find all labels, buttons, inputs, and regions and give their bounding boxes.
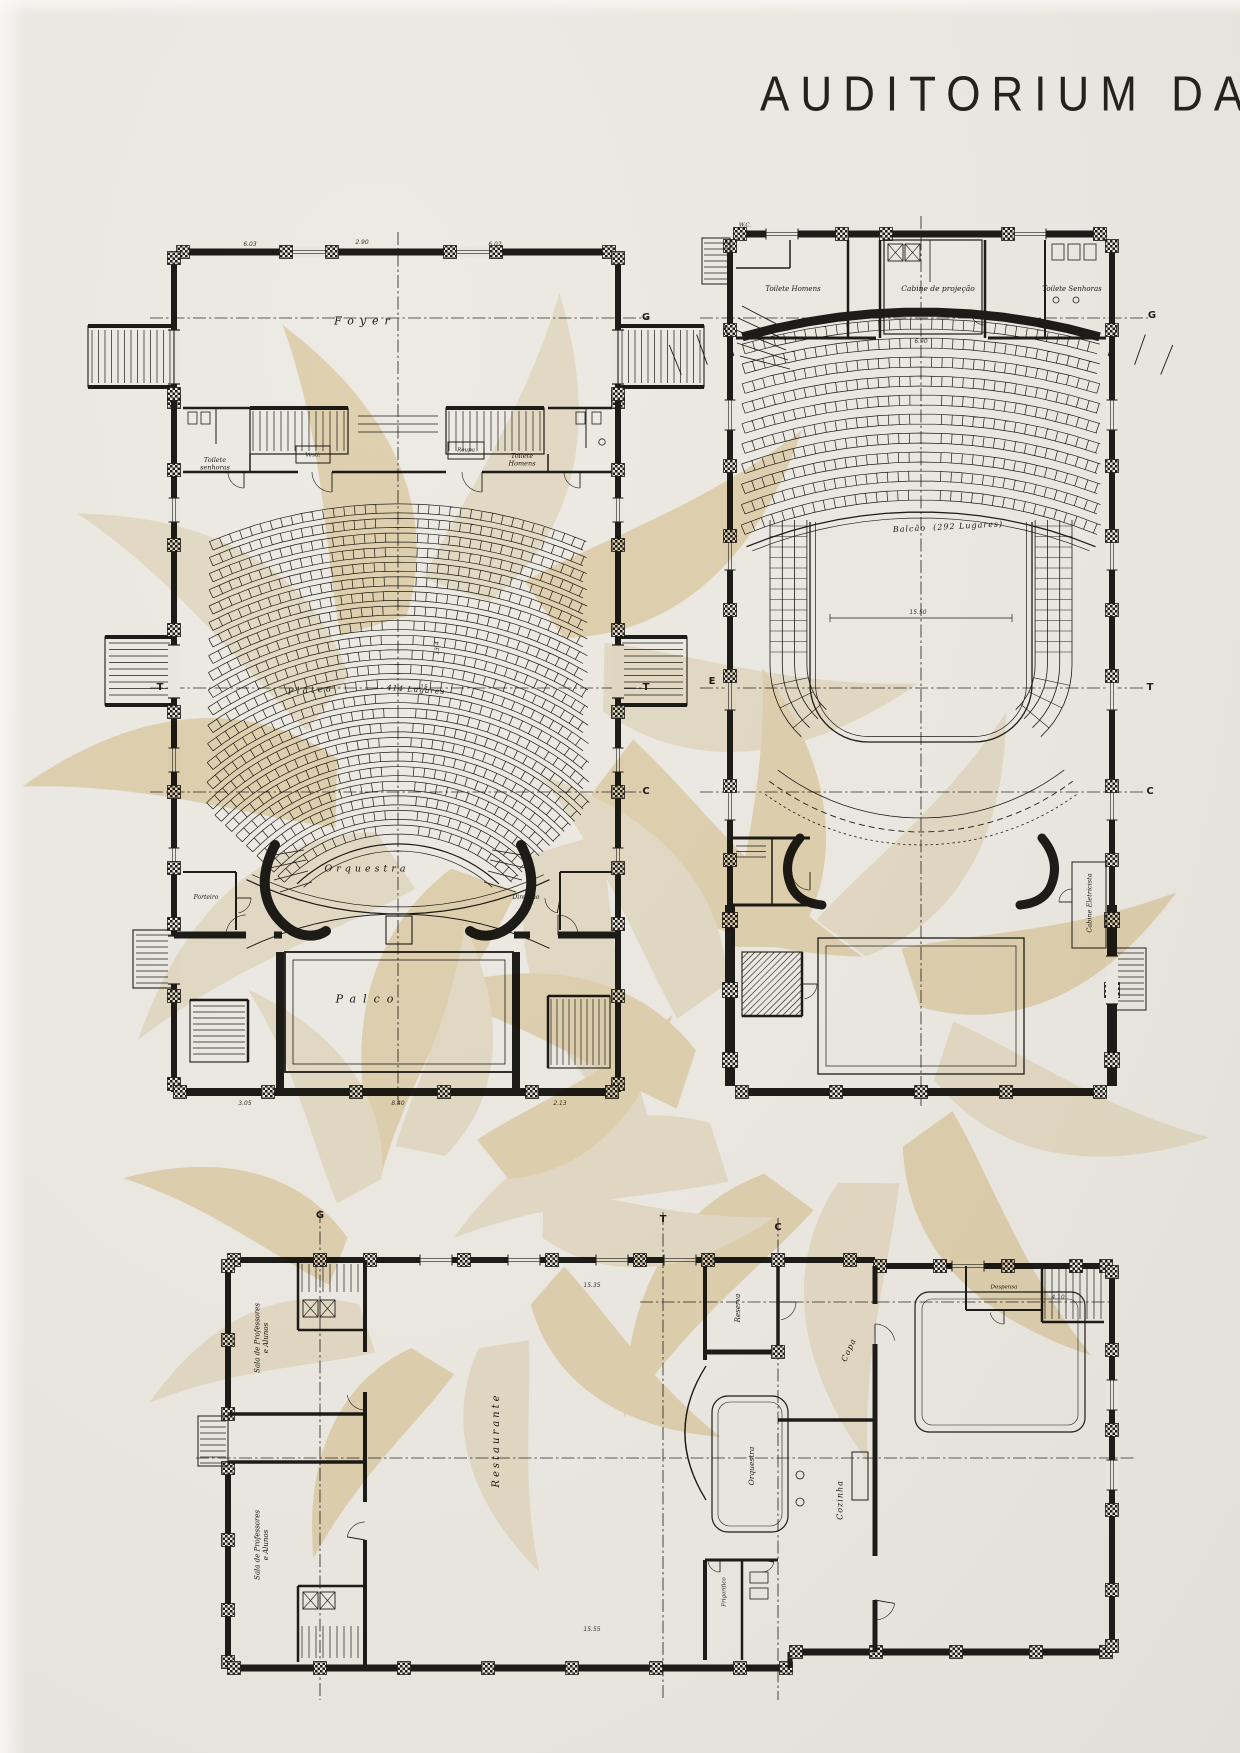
blueprint-page: AUDITORIUM DA FoyerToilete senhorasVesti…: [0, 0, 1240, 1753]
floor-plans-drawing: [0, 0, 1240, 1753]
plan-basement-floor: [198, 1254, 1119, 1675]
page-title: AUDITORIUM DA: [760, 67, 1240, 123]
plan-ground-floor: [88, 246, 704, 1099]
